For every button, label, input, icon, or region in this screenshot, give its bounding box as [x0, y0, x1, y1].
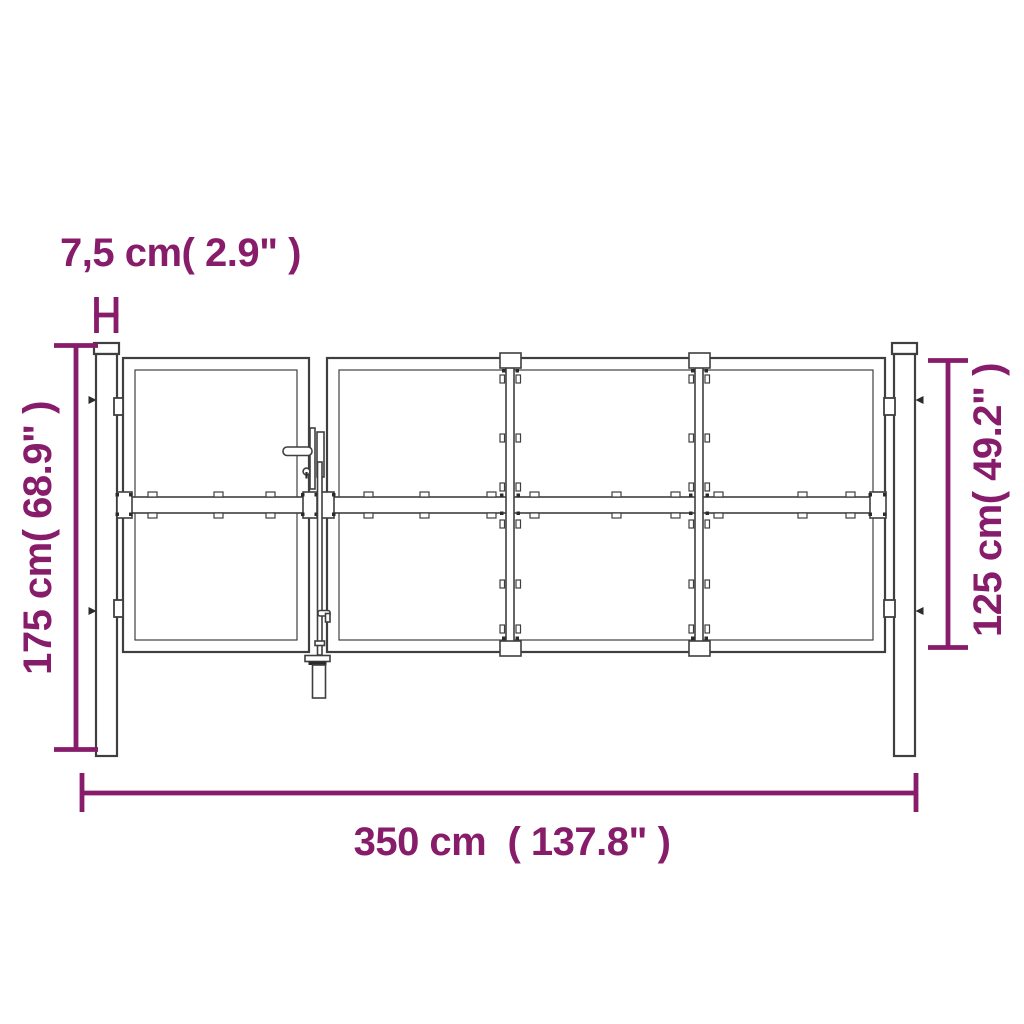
hinge-top-right — [884, 398, 895, 415]
gate-height-label: 125 cm( 49.2" ) — [966, 363, 1010, 637]
product-dimension-diagram: 7,5 cm( 2.9" ) 175 cm( 68.9" ) 125 cm( 4… — [0, 0, 1024, 1024]
stiffener-2 — [695, 358, 703, 652]
drop-rod-handle-hook — [326, 614, 331, 623]
lock-plate — [310, 428, 315, 489]
stiffener-1-top-cap — [500, 353, 521, 368]
hinge-pin-mark — [916, 607, 924, 615]
keyhole-slot — [305, 472, 307, 479]
post-height-label: 175 cm( 68.9" ) — [16, 401, 60, 675]
hinge-bottom-right — [884, 600, 895, 617]
right-post-cap — [892, 343, 917, 354]
center-rail — [123, 497, 885, 513]
rail-right-segment — [327, 497, 885, 513]
ground-sleeve-flange — [305, 656, 330, 662]
dim-gate-height: 125 cm( 49.2" ) — [928, 360, 1010, 648]
hinge-top-left — [114, 398, 123, 415]
dim-gate-width: 350 cm ( 137.8" ) — [82, 773, 916, 864]
drop-rod — [318, 462, 323, 655]
stiffener-1 — [506, 358, 514, 652]
stiffener-2-bottom-cap — [689, 641, 710, 656]
dim-post-width: 7,5 cm( 2.9" ) — [60, 231, 301, 333]
drop-rod-collar — [315, 641, 325, 646]
dim-post-height: 175 cm( 68.9" ) — [16, 345, 98, 750]
lock-handle — [283, 447, 312, 456]
stiffener-2-top-cap — [689, 353, 710, 368]
rail-left-segment — [123, 497, 309, 513]
ground-sleeve-tube — [313, 665, 326, 698]
gate-width-label: 350 cm ( 137.8" ) — [354, 820, 671, 864]
stiffener-1-bottom-cap — [500, 641, 521, 656]
garden-gate-drawing: 7,5 cm( 2.9" ) 175 cm( 68.9" ) 125 cm( 4… — [0, 0, 1024, 1024]
right-post-body — [894, 354, 915, 756]
post-width-label: 7,5 cm( 2.9" ) — [60, 231, 301, 275]
hinge-bottom-left — [114, 600, 123, 617]
hinge-pin-mark — [916, 396, 924, 404]
